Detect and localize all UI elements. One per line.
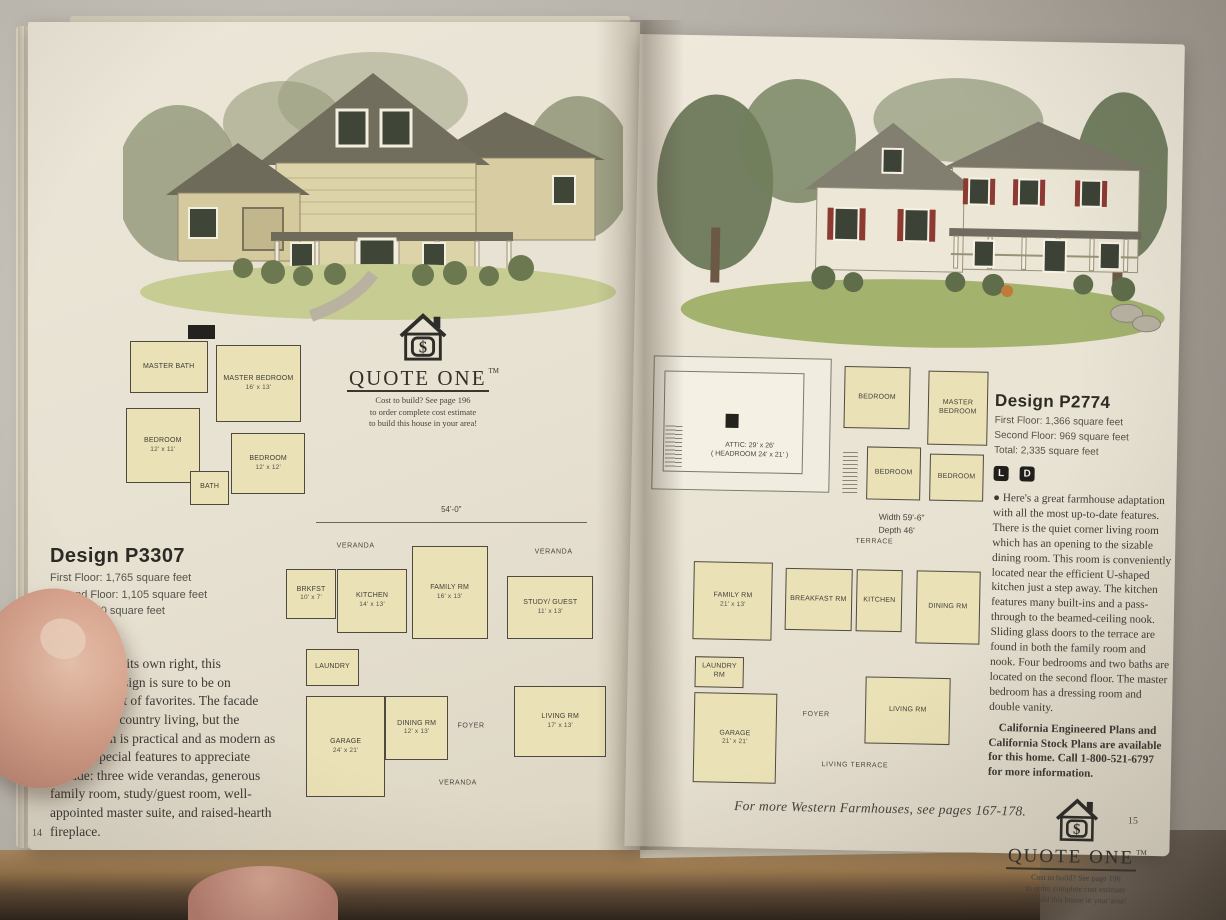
right-page: ATTIC: 29' x 26' ( HEADROOM 24' x 21' ) … [624,34,1184,856]
room-bedroom-br: BEDROOM [929,453,984,501]
total-stat: Total: 2,335 square feet [994,443,1174,461]
right-house-art [654,56,1170,368]
room-dims: 12' x 11' [150,446,175,454]
room-master-bedroom: MASTER BEDROOM 16' x 13' [216,345,302,422]
room-bedroom-1: BEDROOM 12' x 11' [126,408,200,484]
room-dims: 12' x 12' [255,464,281,472]
room-label: LAUNDRY RM [696,663,743,681]
room-label: BEDROOM [249,455,287,464]
living-terrace-label: LIVING TERRACE [821,761,888,769]
room-bath: BATH [190,471,229,505]
room-garage: GARAGE 24' x 21' [306,696,385,797]
design-title: Design P3307 [50,545,278,568]
room-label: BEDROOM [938,473,976,482]
room-label: BRKFST [297,586,326,595]
room-dims: 10' x 7' [300,594,322,602]
veranda-label-top-right: VERANDA [535,549,573,556]
badge-l: L [993,466,1008,481]
room-kitchen: KITCHEN 14' x 13' [337,569,406,633]
room-dims: 16' x 13' [246,384,272,392]
room-family: FAMILY RM 16' x 13' [412,546,488,640]
attic-headroom: ( HEADROOM 24' x 21' ) [711,449,789,460]
room-label: KITCHEN [863,596,895,605]
room-dining: DINING RM [915,571,980,645]
design-title: Design P2774 [995,391,1175,414]
tm-mark: TM [489,367,500,375]
room-dims: 17' x 13' [547,722,573,730]
left-page: MASTER BATH MASTER BEDROOM 16' x 13' BED… [28,22,640,850]
room-brkfst: BRKFST 10' x 7' [286,569,336,619]
right-page-number: 15 [1128,816,1138,827]
foyer-label: FOYER [803,711,830,719]
right-house-illustration [654,56,1170,368]
width-dimension: 54'-0" [441,505,461,514]
right-design-block: Design P2774 First Floor: 1,366 square f… [985,391,1175,908]
room-family: FAMILY RM 21' x 13' [693,561,774,641]
room-label: LIVING RM [541,713,579,722]
width-note: Width 59'-6" [879,511,925,525]
quote-one-block: $ QUOTE ONETM Cost to build? See page 19… [333,310,513,429]
right-second-floor-plan: BEDROOM MASTER BEDROOM BEDROOM BEDROOM [839,360,992,511]
room-label: GARAGE [330,738,361,747]
terrace-label: TERRACE [855,538,893,546]
room-laundry: LAUNDRY [306,649,359,686]
room-label: BREAKFAST RM [790,595,847,605]
room-living: LIVING RM 17' x 13' [514,686,606,756]
right-main-floor-plan: TERRACE FAMILY RM 21' x 13' BREAKFAST RM… [680,527,990,813]
stairs-hatch [665,425,683,467]
left-house-art [123,28,623,326]
veranda-label-top-left: VERANDA [337,542,375,549]
left-main-floor-plan: 54'-0" VERANDA VERANDA BRKFST 10' x 7' K… [283,502,613,837]
room-dims: 21' x 13' [720,601,746,610]
photo-of-open-plan-book: MASTER BATH MASTER BEDROOM 16' x 13' BED… [0,0,1226,920]
room-label: BEDROOM [144,437,182,446]
room-dims: 21' x 21' [722,738,748,747]
quote-one-line2: to order complete cost estimate [333,407,513,418]
room-label: FAMILY RM [430,584,469,593]
room-bedroom-tl: BEDROOM [843,366,910,429]
room-label: LAUNDRY [315,663,350,672]
right-design-body: ● Here's a great farmhouse adaptation wi… [989,491,1173,718]
stairs-hatch [842,449,858,494]
room-dims: 11' x 13' [538,608,563,616]
dim-line [316,522,587,523]
room-label: BATH [200,483,219,492]
room-living: LIVING RM [864,676,951,745]
room-dims: 14' x 13' [359,601,385,609]
house-dollar-icon: $ [1051,795,1104,843]
badge-d: D [1019,466,1034,481]
room-dims: 12' x 13' [404,728,430,736]
room-label: MASTER BATH [143,363,194,372]
room-dims: 16' x 13' [437,593,463,601]
attic-label: ATTIC: 29' x 26' ( HEADROOM 24' x 21' ) [711,440,789,460]
room-bedroom-2: BEDROOM 12' x 12' [231,433,305,494]
quote-one-line3: to build this house in your area! [333,418,513,429]
room-master-bath: MASTER BATH [130,341,208,393]
room-label: STUDY/ GUEST [523,599,577,608]
room-label: DINING RM [397,720,436,729]
thumb-nail [35,613,91,665]
room-label: KITCHEN [356,592,388,601]
room-label: BEDROOM [875,469,913,478]
room-label: MASTER BEDROOM [929,399,987,418]
tm-mark: TM [1136,849,1147,857]
foyer-label: FOYER [458,723,485,730]
chimney-mark [725,414,739,428]
veranda-label-bottom: VERANDA [439,780,477,787]
quote-one-wordmark: QUOTE ONE [347,367,489,392]
house-dollar-icon: $ [394,310,452,362]
right-design-body2: California Engineered Plans and Californ… [988,720,1169,783]
attic-plan: ATTIC: 29' x 26' ( HEADROOM 24' x 21' ) [643,349,838,503]
quote-one-line1: Cost to build? See page 196 [333,395,513,406]
svg-text:$: $ [419,337,427,356]
room-laundry: LAUNDRY RM [695,656,744,688]
room-study-guest: STUDY/ GUEST 11' x 13' [507,576,593,640]
left-second-floor-plan: MASTER BATH MASTER BEDROOM 16' x 13' BED… [118,332,313,512]
room-dims: 24' x 21' [333,747,359,755]
first-floor-stat: First Floor: 1,765 square feet [50,570,278,587]
left-house-illustration [123,28,623,326]
room-label: MASTER BEDROOM [223,375,293,384]
room-breakfast: BREAKFAST RM [784,568,852,631]
room-garage: GARAGE 21' x 21' [693,692,777,783]
room-kitchen: KITCHEN [856,569,903,631]
left-page-number: 14 [32,828,42,839]
svg-text:$: $ [1073,822,1081,838]
room-master-bedroom: MASTER BEDROOM [927,370,988,445]
quote-one-wordmark: QUOTE ONE [1006,846,1137,871]
plan-roof-mark [188,325,215,339]
room-label: BEDROOM [858,393,896,402]
room-label: LIVING RM [889,706,927,715]
room-bedroom-bl: BEDROOM [866,446,921,500]
room-dining: DINING RM 12' x 13' [385,696,448,760]
room-label: DINING RM [928,603,967,612]
